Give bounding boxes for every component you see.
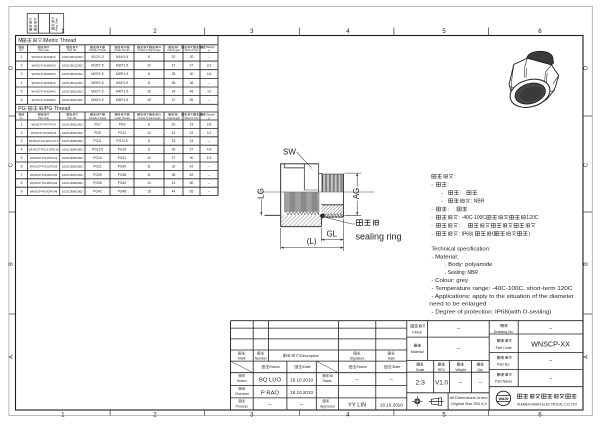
svg-text:11: 11 bbox=[147, 81, 151, 85]
svg-text:1021GB022002: 1021GB022002 bbox=[62, 131, 83, 135]
svg-text:13: 13 bbox=[147, 181, 151, 185]
svg-text:8: 8 bbox=[148, 139, 150, 143]
svg-text:22: 22 bbox=[172, 55, 176, 59]
svg-text:1021GB092002: 1021GB092002 bbox=[62, 190, 83, 194]
svg-text:–: – bbox=[208, 98, 210, 102]
svg-text:27: 27 bbox=[172, 156, 176, 160]
svg-text:WAIN: WAIN bbox=[498, 397, 508, 401]
svg-text:Total length: Total length bbox=[167, 117, 180, 120]
svg-text:2:3: 2:3 bbox=[415, 380, 425, 387]
svg-text:4: 4 bbox=[346, 412, 350, 419]
svg-text:. Sealing: NBR: . Sealing: NBR bbox=[445, 270, 479, 276]
svg-text:/Metric Thread: /Metric Thread bbox=[43, 38, 76, 44]
svg-text:Weight: Weight bbox=[455, 368, 466, 372]
svg-text:9: 9 bbox=[21, 190, 23, 194]
svg-text:YY LIN: YY LIN bbox=[348, 403, 366, 409]
svg-text:1021GB052002: 1021GB052002 bbox=[62, 156, 83, 160]
svg-text:WNSCP-M12M16: WNSCP-M12M16 bbox=[32, 55, 56, 59]
svg-text:–: – bbox=[208, 164, 210, 168]
svg-text:PG13.5: PG13.5 bbox=[92, 148, 103, 152]
svg-text:8: 8 bbox=[148, 55, 150, 59]
svg-text:M12*1.5: M12*1.5 bbox=[91, 55, 103, 59]
svg-text:1: 1 bbox=[61, 28, 65, 35]
svg-text:10: 10 bbox=[147, 64, 151, 68]
svg-text:PG21: PG21 bbox=[118, 156, 127, 160]
svg-text:(L): (L) bbox=[307, 237, 317, 246]
svg-text:PG36: PG36 bbox=[93, 181, 102, 185]
svg-text:4.9: 4.9 bbox=[207, 148, 212, 152]
svg-text:PG16: PG16 bbox=[118, 148, 127, 152]
svg-text:PG42: PG42 bbox=[118, 181, 127, 185]
svg-text:32: 32 bbox=[172, 164, 176, 168]
svg-text:Material: Material bbox=[411, 350, 424, 354]
svg-text:/Date: /Date bbox=[392, 365, 401, 369]
svg-text:3: 3 bbox=[250, 412, 254, 419]
svg-text:/Name: /Name bbox=[356, 365, 367, 369]
svg-text:1021GB082002: 1021GB082002 bbox=[62, 181, 83, 185]
svg-text:Part code: Part code bbox=[38, 49, 49, 52]
svg-text:Original Size DIN A 4: Original Size DIN A 4 bbox=[451, 402, 487, 406]
svg-text:37: 37 bbox=[172, 98, 176, 102]
svg-text:23: 23 bbox=[172, 139, 176, 143]
svg-text:REV.: REV. bbox=[438, 368, 446, 372]
svg-text:WNSCP-PG13.5PG16: WNSCP-PG13.5PG16 bbox=[29, 148, 59, 152]
svg-text:Wrench size: Wrench size bbox=[185, 117, 199, 120]
svg-text:PG29: PG29 bbox=[118, 164, 127, 168]
svg-text:Part No.: Part No. bbox=[497, 362, 510, 366]
svg-text:Part Code: Part Code bbox=[496, 346, 512, 350]
svg-text:Outside Thread: Outside Thread bbox=[89, 117, 107, 120]
svg-text:WNSCP-XX: WNSCP-XX bbox=[531, 339, 570, 348]
svg-text:Mark: Mark bbox=[238, 356, 246, 360]
svg-text:Inside Thread: Inside Thread bbox=[114, 49, 130, 52]
svg-text:- Applications: apply to the s: - Applications: apply to the situation o… bbox=[431, 294, 574, 300]
svg-text:WNSCP-PG21PG29: WNSCP-PG21PG29 bbox=[30, 164, 58, 168]
svg-text:sealing ring: sealing ring bbox=[356, 232, 402, 242]
svg-text:30: 30 bbox=[190, 72, 194, 76]
svg-text:16: 16 bbox=[147, 90, 151, 94]
svg-text:GL: GL bbox=[326, 230, 337, 239]
svg-text:WNSCP-M40M50: WNSCP-M40M50 bbox=[32, 98, 56, 102]
svg-text:1021GB142002: 1021GB142002 bbox=[62, 81, 83, 85]
svg-text:Part code: Part code bbox=[38, 117, 49, 120]
svg-text:35: 35 bbox=[172, 173, 176, 177]
svg-text:Drawn: Drawn bbox=[237, 379, 247, 383]
svg-text:M16*1.5: M16*1.5 bbox=[91, 64, 103, 68]
svg-text:1021GB012002: 1021GB012002 bbox=[62, 122, 83, 126]
svg-text:PG36: PG36 bbox=[118, 173, 127, 177]
svg-text:All Dimensions in mm: All Dimensions in mm bbox=[450, 396, 488, 400]
svg-text:B: B bbox=[8, 262, 14, 266]
svg-text:6: 6 bbox=[538, 412, 542, 419]
svg-text:Part Name: Part Name bbox=[495, 380, 512, 384]
svg-text:PG16: PG16 bbox=[93, 156, 102, 160]
svg-text:WNSCP-PG7PG9: WNSCP-PG7PG9 bbox=[32, 122, 57, 126]
svg-text:–: – bbox=[208, 181, 210, 185]
svg-text:2: 2 bbox=[153, 28, 157, 35]
svg-text:15: 15 bbox=[147, 98, 151, 102]
svg-text:3: 3 bbox=[21, 139, 23, 143]
svg-text:44: 44 bbox=[172, 190, 176, 194]
svg-text:24: 24 bbox=[172, 131, 176, 135]
svg-text:Checked: Checked bbox=[235, 392, 248, 396]
svg-text:/Name: /Name bbox=[269, 365, 280, 369]
svg-text:4.6: 4.6 bbox=[207, 72, 212, 76]
svg-text:WNSCP-PG29PG36: WNSCP-PG29PG36 bbox=[30, 173, 58, 177]
svg-text:Part NO.: Part NO. bbox=[67, 49, 77, 52]
svg-text:PG13.5: PG13.5 bbox=[116, 139, 127, 143]
svg-text:1021GB042002: 1021GB042002 bbox=[62, 148, 83, 152]
svg-text:2.8: 2.8 bbox=[207, 122, 212, 126]
svg-text:4: 4 bbox=[346, 28, 350, 35]
svg-text:- Degree of protection: IP68(w: - Degree of protection: IP68(with O-seal… bbox=[431, 310, 551, 316]
svg-text:Process: Process bbox=[236, 404, 249, 408]
svg-text:2: 2 bbox=[21, 64, 23, 68]
svg-text:4: 4 bbox=[21, 81, 23, 85]
svg-text:–: – bbox=[300, 402, 303, 408]
svg-text:Inside Thread: Inside Thread bbox=[114, 117, 130, 120]
svg-text:M20*1.5: M20*1.5 bbox=[91, 72, 103, 76]
svg-text:28: 28 bbox=[172, 72, 176, 76]
svg-text:C: C bbox=[584, 163, 590, 167]
svg-text:: NBR: : NBR bbox=[471, 199, 485, 205]
svg-text:PG7: PG7 bbox=[94, 122, 101, 126]
svg-text:A: A bbox=[8, 355, 14, 359]
svg-text:1021GB062002: 1021GB062002 bbox=[62, 164, 83, 168]
svg-text:1021GB072002: 1021GB072002 bbox=[62, 173, 83, 177]
svg-text:5: 5 bbox=[442, 412, 446, 419]
svg-text:1021GB122002: 1021GB122002 bbox=[62, 64, 83, 68]
svg-text:Signature: Signature bbox=[350, 356, 365, 360]
svg-text:30: 30 bbox=[190, 156, 194, 160]
svg-text:–: – bbox=[208, 139, 210, 143]
svg-text:65: 65 bbox=[190, 190, 194, 194]
svg-text:120C: 120C bbox=[526, 215, 538, 221]
svg-text:M20*1.5: M20*1.5 bbox=[116, 64, 128, 68]
svg-text:O: O bbox=[492, 231, 496, 237]
svg-text:D: D bbox=[8, 66, 14, 70]
svg-text:27: 27 bbox=[190, 148, 194, 152]
svg-text:8: 8 bbox=[21, 181, 23, 185]
svg-text:P RAO: P RAO bbox=[261, 390, 279, 396]
svg-text:15: 15 bbox=[147, 190, 151, 194]
svg-text:1021GB112002: 1021GB112002 bbox=[62, 55, 83, 59]
svg-text:8: 8 bbox=[148, 122, 150, 126]
svg-text:PG11: PG11 bbox=[93, 139, 101, 143]
svg-text:7: 7 bbox=[21, 173, 23, 177]
svg-text:M16*1.5: M16*1.5 bbox=[116, 55, 128, 59]
svg-text:LG: LG bbox=[256, 188, 265, 199]
svg-text:: -40C-100C,: : -40C-100C, bbox=[459, 215, 488, 221]
svg-text:Wrench size: Wrench size bbox=[185, 49, 199, 52]
svg-text:Finish: Finish bbox=[412, 331, 422, 335]
svg-text:A: A bbox=[584, 355, 590, 359]
svg-text:5: 5 bbox=[442, 28, 446, 35]
svg-text:PG: PG bbox=[18, 106, 26, 112]
svg-text:5: 5 bbox=[21, 156, 23, 160]
svg-text:27: 27 bbox=[190, 64, 194, 68]
svg-text:20: 20 bbox=[190, 55, 194, 59]
svg-text:Part NO.: Part NO. bbox=[67, 117, 77, 120]
svg-text:22: 22 bbox=[190, 131, 194, 135]
svg-text:24: 24 bbox=[190, 139, 194, 143]
svg-text:/PG Thread: /PG Thread bbox=[43, 106, 70, 112]
svg-text:/Weight: /Weight bbox=[206, 112, 215, 116]
svg-text:D: D bbox=[584, 66, 590, 70]
svg-text:M40*1.5: M40*1.5 bbox=[116, 90, 128, 94]
svg-text:27: 27 bbox=[172, 64, 176, 68]
svg-text:No.: No. bbox=[20, 49, 24, 52]
svg-text:Outside Thread length: Outside Thread length bbox=[138, 49, 161, 52]
svg-text:11: 11 bbox=[147, 164, 151, 168]
svg-text::: : bbox=[460, 190, 461, 196]
svg-text:3.2: 3.2 bbox=[207, 64, 212, 68]
svg-text::: : bbox=[447, 207, 448, 213]
svg-text:BQ LUO: BQ LUO bbox=[259, 378, 281, 384]
svg-text:M40*1.5: M40*1.5 bbox=[91, 98, 103, 102]
svg-text:6: 6 bbox=[21, 164, 23, 168]
svg-text:Outside Thread length: Outside Thread length bbox=[138, 117, 161, 120]
svg-text:3: 3 bbox=[250, 28, 254, 35]
svg-text:1021GB152002: 1021GB152002 bbox=[62, 90, 83, 94]
svg-text:WNSCP-M32M40: WNSCP-M32M40 bbox=[32, 90, 56, 94]
svg-text:52: 52 bbox=[190, 173, 194, 177]
svg-text:/Date: /Date bbox=[302, 365, 311, 369]
svg-text:1021GB162002: 1021GB162002 bbox=[62, 98, 83, 102]
svg-text:–: – bbox=[390, 377, 393, 383]
svg-text:42: 42 bbox=[190, 164, 194, 168]
svg-text:18.10.2010: 18.10.2010 bbox=[380, 402, 403, 407]
svg-text:8: 8 bbox=[148, 72, 150, 76]
svg-text:- Temperature range: -40C-100C: - Temperature range: -40C-100C, short-te… bbox=[431, 286, 572, 292]
svg-text:6: 6 bbox=[21, 98, 23, 102]
svg-text:–: – bbox=[356, 377, 359, 383]
svg-text:36: 36 bbox=[190, 81, 194, 85]
svg-text:V1.0: V1.0 bbox=[435, 380, 448, 387]
svg-text:Scale: Scale bbox=[416, 368, 425, 372]
svg-text:19: 19 bbox=[190, 122, 194, 126]
svg-text:–: – bbox=[269, 402, 272, 408]
svg-text:: IP68(: : IP68( bbox=[459, 231, 474, 237]
svg-text:Qty.: Qty. bbox=[477, 368, 483, 372]
svg-text:PG48: PG48 bbox=[118, 190, 127, 194]
svg-text:WNSCP-PG42PG48: WNSCP-PG42PG48 bbox=[30, 190, 58, 194]
svg-text:20: 20 bbox=[172, 122, 176, 126]
svg-text::: : bbox=[447, 182, 448, 188]
svg-text:M25*1.5: M25*1.5 bbox=[91, 81, 103, 85]
svg-text:Approved: Approved bbox=[320, 404, 335, 408]
svg-text:Technical specification:: Technical specification: bbox=[431, 246, 490, 252]
svg-text:PG21: PG21 bbox=[93, 164, 102, 168]
svg-text:AG: AG bbox=[352, 188, 361, 200]
svg-text:SW: SW bbox=[283, 148, 296, 157]
svg-text:WNSCP-PG36PG42: WNSCP-PG36PG42 bbox=[30, 181, 58, 185]
svg-text:M25*1.5: M25*1.5 bbox=[116, 72, 128, 76]
svg-text:WNSCP-M16M20: WNSCP-M16M20 bbox=[32, 64, 56, 68]
svg-text:Date: Date bbox=[388, 356, 395, 360]
svg-text:WNSCP-M20M25: WNSCP-M20M25 bbox=[32, 72, 56, 76]
svg-text:2: 2 bbox=[21, 131, 23, 135]
svg-text:WNSCP-PG9PG11: WNSCP-PG9PG11 bbox=[31, 131, 57, 135]
svg-text:Filing Clerk: Filing Clerk bbox=[55, 17, 59, 31]
svg-text:13: 13 bbox=[207, 90, 211, 94]
svg-text:–: – bbox=[208, 173, 210, 177]
svg-text:5.3: 5.3 bbox=[207, 156, 212, 160]
svg-text:3: 3 bbox=[21, 72, 23, 76]
svg-text:XIAMEN WAIN ELECTRICAL CO.LTD: XIAMEN WAIN ELECTRICAL CO.LTD bbox=[517, 403, 577, 407]
svg-text:–: – bbox=[208, 81, 210, 85]
svg-text:10: 10 bbox=[147, 156, 151, 160]
svg-text:6: 6 bbox=[538, 28, 542, 35]
svg-text:60: 60 bbox=[190, 181, 194, 185]
svg-text:26: 26 bbox=[172, 148, 176, 152]
svg-text:Stand.: Stand. bbox=[322, 379, 332, 383]
svg-text:18.10.2010: 18.10.2010 bbox=[290, 390, 313, 395]
svg-text::: : bbox=[459, 223, 460, 229]
svg-text:PG9: PG9 bbox=[94, 131, 101, 135]
svg-text:- Colour: grey: - Colour: grey bbox=[431, 278, 468, 284]
svg-text:46: 46 bbox=[190, 90, 194, 94]
svg-text:need to be enlarged: need to be enlarged bbox=[429, 302, 486, 308]
svg-text:WNSCP-PG16PG21: WNSCP-PG16PG21 bbox=[30, 156, 58, 160]
svg-text:1021GB032002: 1021GB032002 bbox=[62, 139, 83, 143]
svg-text:3.2: 3.2 bbox=[207, 131, 212, 135]
svg-text:PG11: PG11 bbox=[118, 131, 126, 135]
svg-text:M32*1.5: M32*1.5 bbox=[91, 90, 103, 94]
svg-text:1: 1 bbox=[21, 122, 23, 126]
svg-text:43: 43 bbox=[172, 181, 176, 185]
svg-text:PG29: PG29 bbox=[93, 173, 102, 177]
svg-text:No.: No. bbox=[20, 117, 24, 120]
svg-text:GL: GL bbox=[158, 112, 162, 116]
svg-text:. Body: polyamide: . Body: polyamide bbox=[445, 262, 493, 268]
svg-text:5: 5 bbox=[21, 90, 23, 94]
svg-text:8: 8 bbox=[148, 148, 150, 152]
svg-text:PG9: PG9 bbox=[119, 122, 126, 126]
svg-text:C: C bbox=[8, 163, 14, 167]
svg-text:1021GB132002: 1021GB132002 bbox=[62, 72, 83, 76]
svg-text:M50*1.5: M50*1.5 bbox=[116, 98, 128, 102]
svg-text:- Material:: - Material: bbox=[431, 254, 458, 260]
svg-text:/Weight: /Weight bbox=[206, 45, 215, 49]
svg-text:/Description: /Description bbox=[299, 354, 319, 358]
svg-text:18.10.2010: 18.10.2010 bbox=[290, 377, 313, 382]
svg-text:WNSCP-M25M32: WNSCP-M25M32 bbox=[32, 81, 56, 85]
svg-text:4: 4 bbox=[21, 148, 23, 152]
svg-text:–: – bbox=[208, 55, 210, 59]
svg-text:11: 11 bbox=[147, 173, 151, 177]
svg-text:PG42: PG42 bbox=[93, 190, 102, 194]
svg-text:B: B bbox=[584, 262, 590, 266]
svg-text:55: 55 bbox=[190, 98, 194, 102]
svg-text:2: 2 bbox=[153, 412, 157, 419]
svg-text:WNSCP-PG11PG13.5: WNSCP-PG11PG13.5 bbox=[29, 139, 59, 143]
svg-text:34: 34 bbox=[172, 90, 176, 94]
svg-text:Total length: Total length bbox=[167, 49, 180, 52]
svg-text:Outside Thread: Outside Thread bbox=[89, 49, 107, 52]
svg-text::: : bbox=[454, 174, 455, 180]
svg-text:Drawing No.: Drawing No. bbox=[494, 330, 514, 334]
svg-text:1: 1 bbox=[61, 412, 65, 419]
svg-text:M32*1.5: M32*1.5 bbox=[116, 81, 128, 85]
svg-text:10: 10 bbox=[147, 131, 151, 135]
svg-text:Number: Number bbox=[255, 356, 268, 360]
svg-text:36: 36 bbox=[172, 81, 176, 85]
svg-text:–: – bbox=[208, 190, 210, 194]
svg-text:GL: GL bbox=[158, 45, 162, 49]
svg-text:1: 1 bbox=[21, 55, 23, 59]
